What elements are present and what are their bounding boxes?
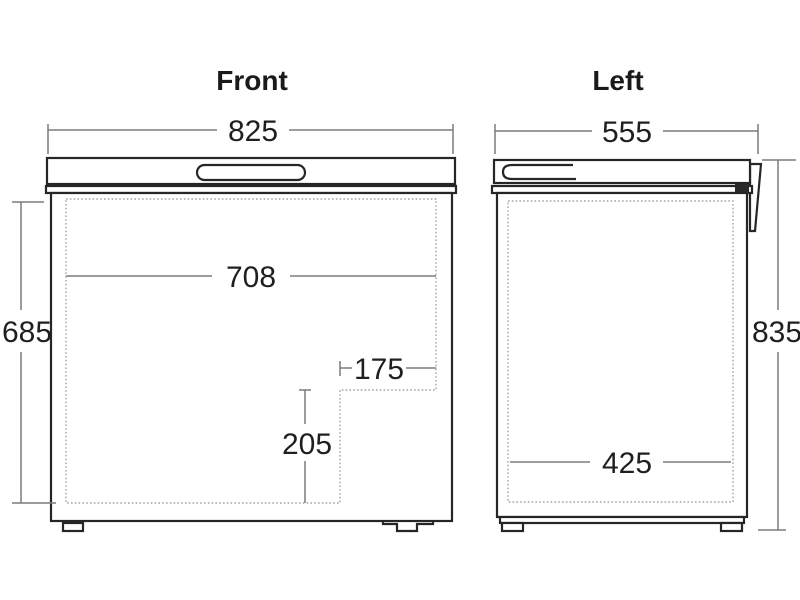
front-right-foot-notch (383, 521, 433, 531)
left-base-plinth (500, 517, 744, 523)
left-height-label: 835 (752, 316, 800, 349)
front-step-height-label: 205 (282, 428, 332, 461)
left-view-title: Left (592, 65, 643, 96)
dimension-diagram: Front 825 708 685 (0, 0, 800, 600)
front-height-label: 685 (2, 316, 52, 349)
left-height-dimension: 835 (752, 160, 800, 530)
left-depth-dimension: 555 (495, 116, 758, 154)
left-hinge (750, 164, 761, 231)
front-inner-width-label: 708 (226, 261, 276, 294)
front-view: Front 825 708 685 (2, 65, 456, 531)
freezer-dimension-drawing: Front 825 708 685 (0, 0, 800, 600)
left-view: Left 555 425 (492, 65, 800, 531)
front-left-foot (63, 523, 83, 531)
front-step-width-label: 175 (354, 353, 404, 386)
left-inner-depth-label: 425 (602, 447, 652, 480)
left-depth-label: 555 (602, 116, 652, 149)
front-height-dimension: 685 (2, 202, 56, 503)
left-rear-foot (721, 523, 742, 531)
front-view-title: Front (216, 65, 288, 96)
left-front-foot (502, 523, 523, 531)
front-lid-handle (197, 165, 305, 180)
front-width-dimension: 825 (48, 115, 453, 154)
front-width-label: 825 (228, 115, 278, 148)
